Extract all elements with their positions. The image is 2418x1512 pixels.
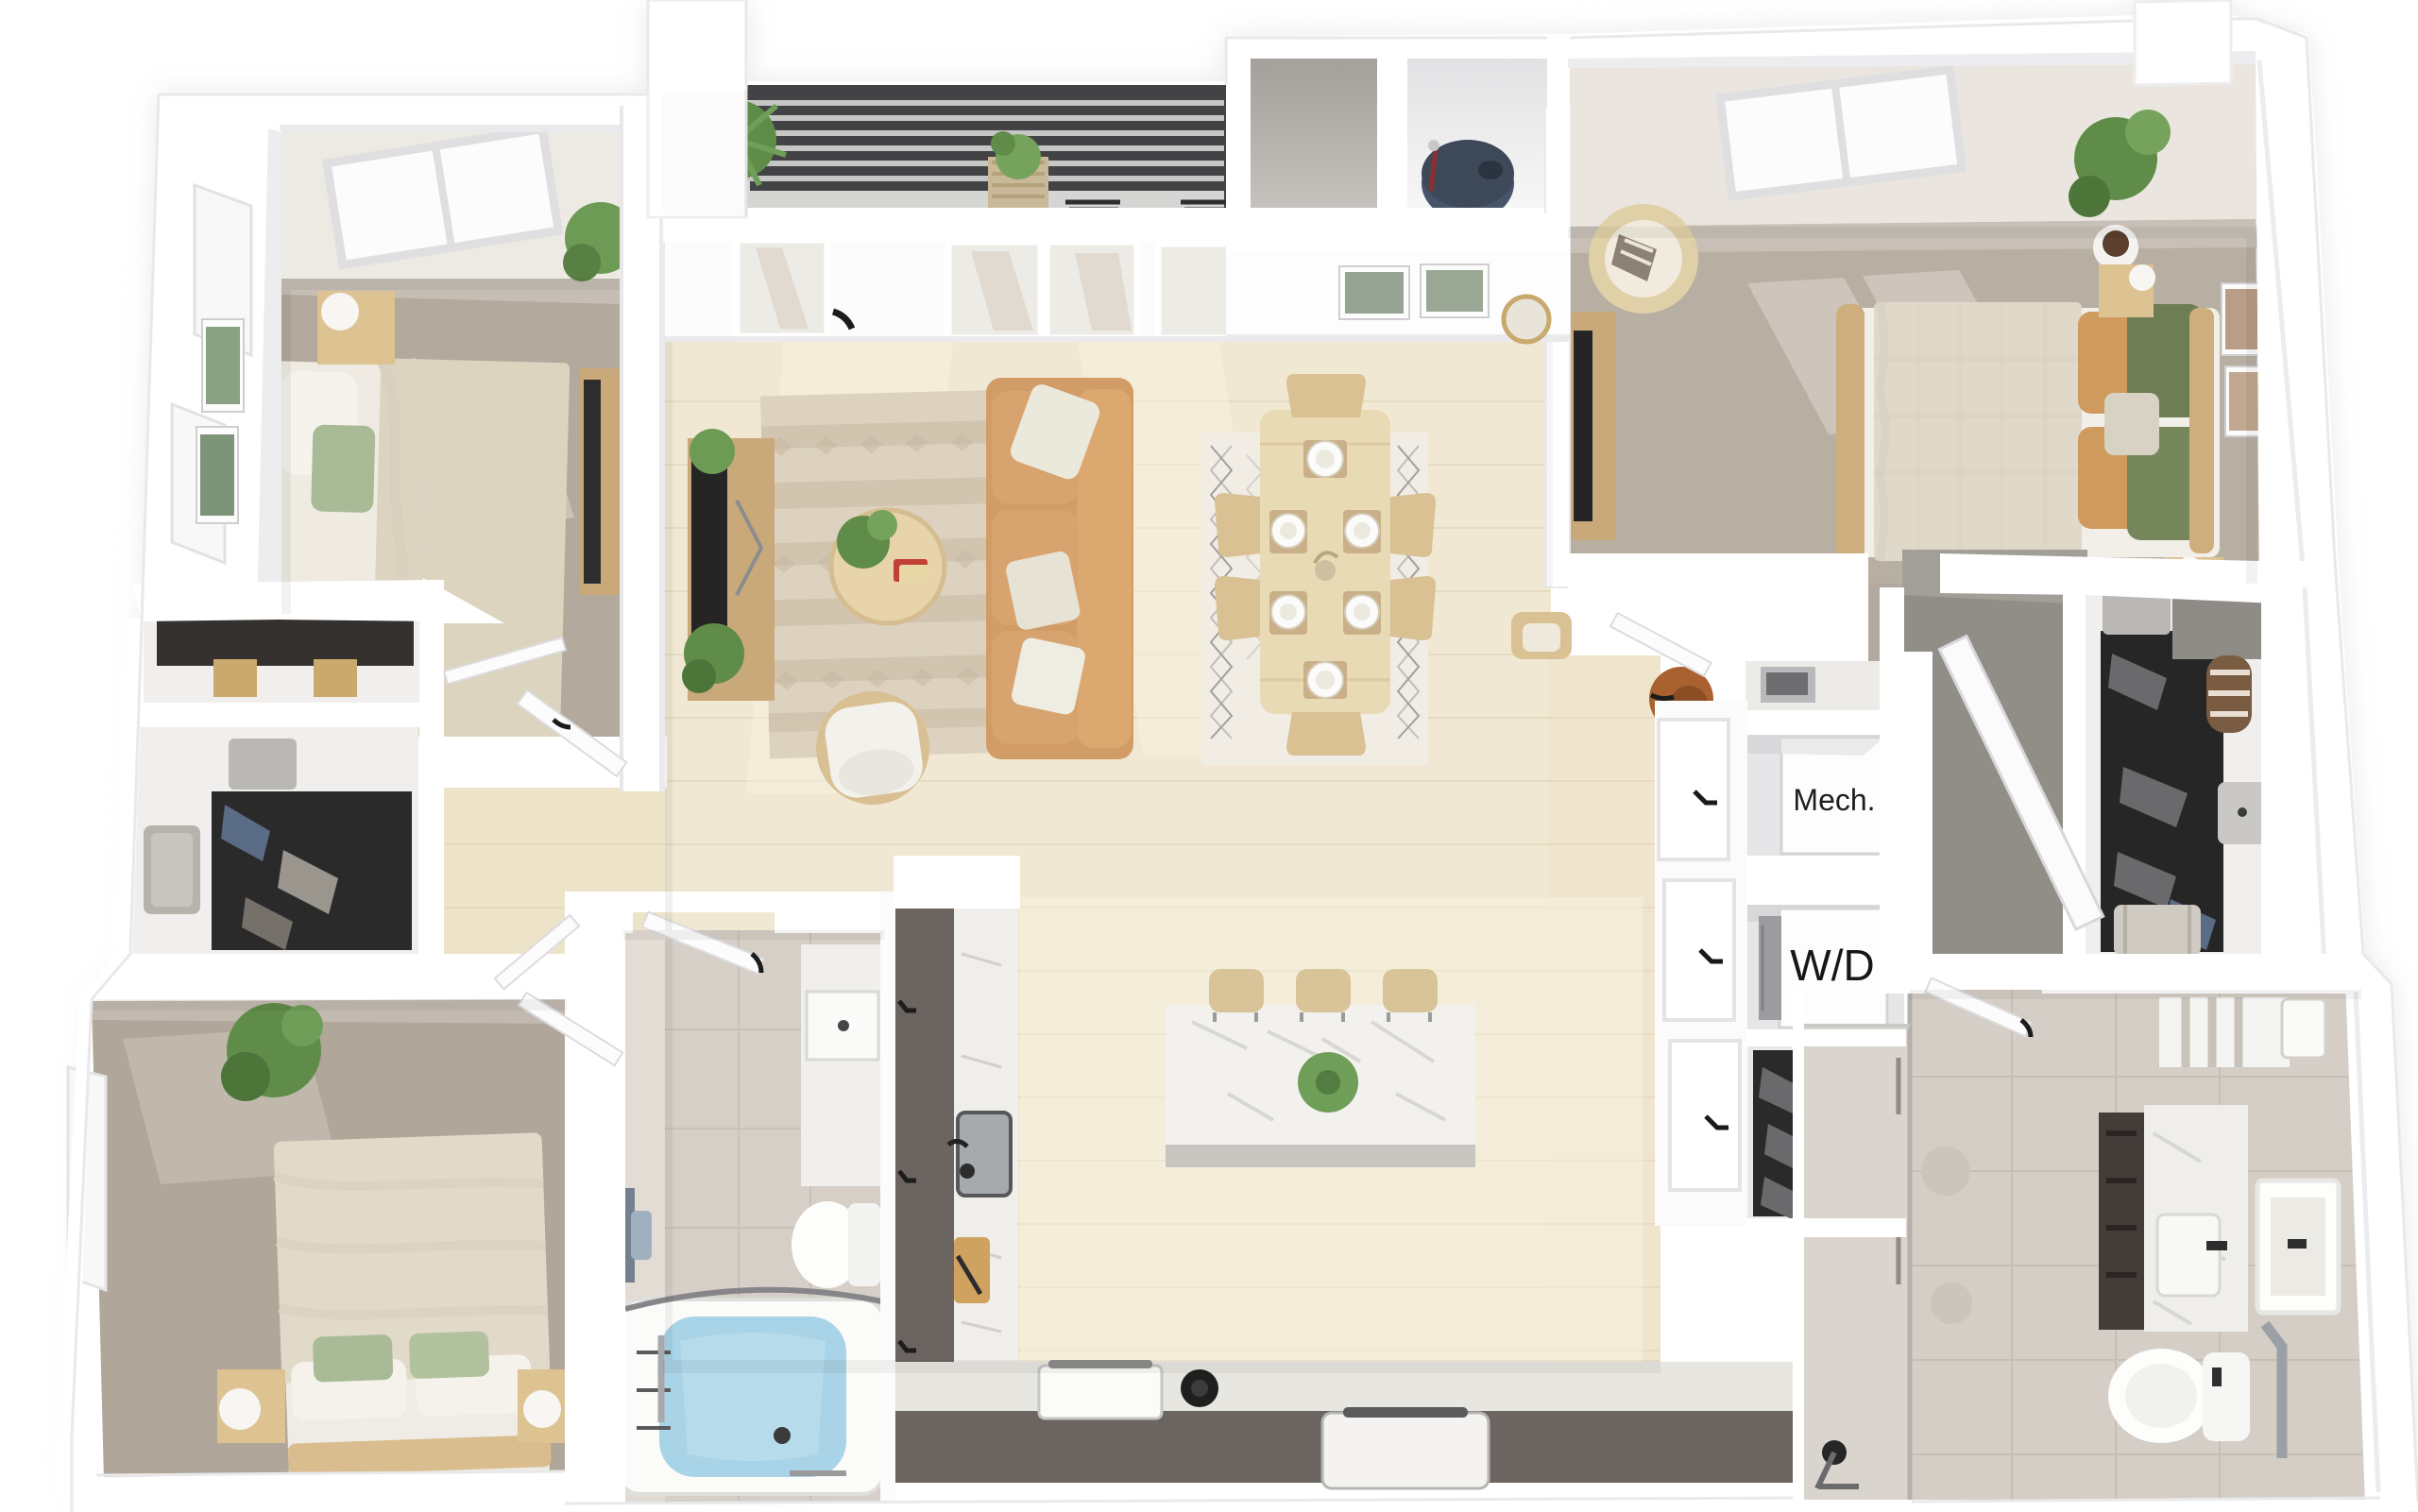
svg-text:W/D: W/D — [1790, 941, 1874, 990]
svg-text:Mech.: Mech. — [1793, 783, 1875, 817]
